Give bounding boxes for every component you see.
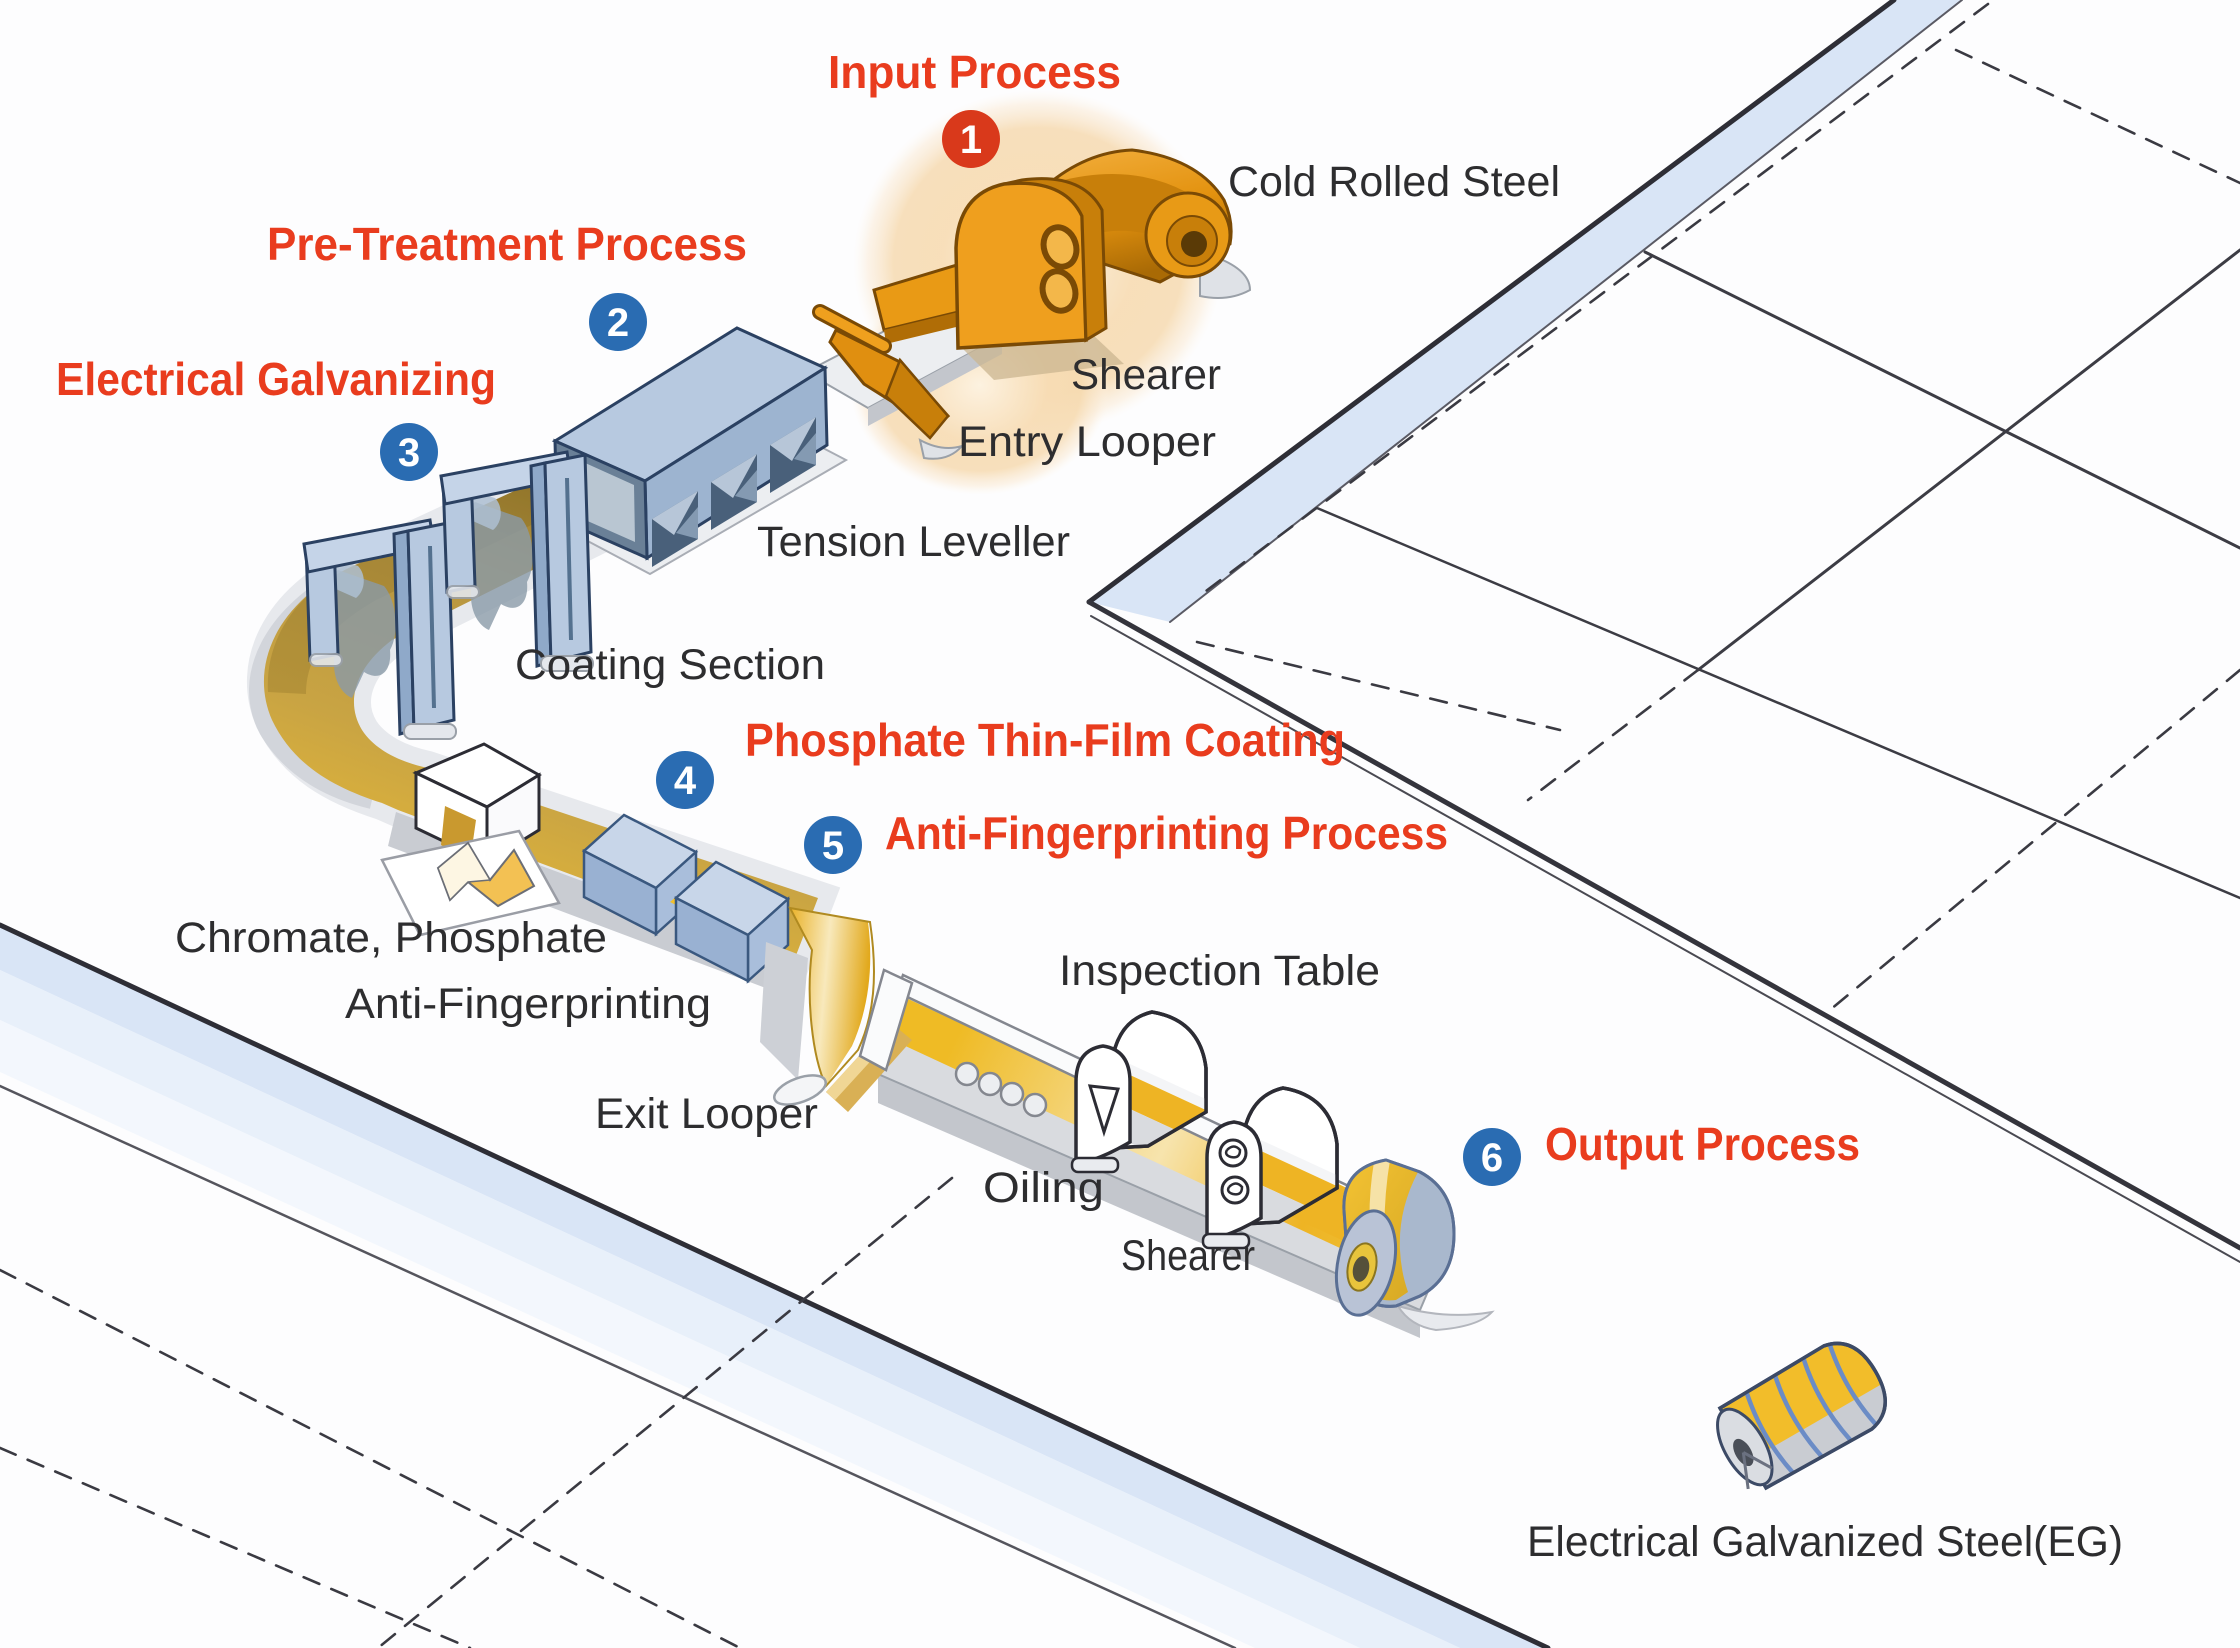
svg-text:Exit Looper: Exit Looper: [595, 1090, 818, 1138]
svg-text:Chromate, Phosphate: Chromate, Phosphate: [175, 914, 607, 962]
svg-text:Shearer: Shearer: [1071, 351, 1221, 399]
svg-text:Shearer: Shearer: [1121, 1232, 1255, 1280]
svg-text:3: 3: [398, 431, 420, 475]
svg-text:Tension Leveller: Tension Leveller: [757, 518, 1070, 566]
svg-text:5: 5: [822, 824, 844, 868]
svg-text:1: 1: [960, 118, 982, 162]
svg-text:Anti-Fingerprinting: Anti-Fingerprinting: [345, 980, 711, 1028]
svg-text:Cold Rolled Steel: Cold Rolled Steel: [1228, 158, 1560, 206]
svg-text:Entry Looper: Entry Looper: [958, 418, 1216, 466]
svg-text:4: 4: [674, 759, 697, 803]
svg-text:Anti-Fingerprinting Process: Anti-Fingerprinting Process: [885, 807, 1448, 859]
svg-text:Input Process: Input Process: [828, 46, 1121, 98]
svg-text:Inspection Table: Inspection Table: [1059, 947, 1380, 995]
svg-text:Oiling: Oiling: [983, 1164, 1104, 1212]
svg-text:6: 6: [1481, 1136, 1503, 1180]
svg-text:Electrical Galvanizing: Electrical Galvanizing: [56, 353, 496, 405]
svg-text:Phosphate Thin-Film Coating: Phosphate Thin-Film Coating: [745, 714, 1345, 766]
svg-text:2: 2: [607, 301, 629, 345]
svg-text:Pre-Treatment Process: Pre-Treatment Process: [267, 218, 747, 270]
svg-text:Output Process: Output Process: [1545, 1118, 1860, 1170]
svg-text:Electrical Galvanized Steel(EG: Electrical Galvanized Steel(EG): [1527, 1518, 2123, 1566]
svg-text:Coating Section: Coating Section: [515, 641, 825, 689]
